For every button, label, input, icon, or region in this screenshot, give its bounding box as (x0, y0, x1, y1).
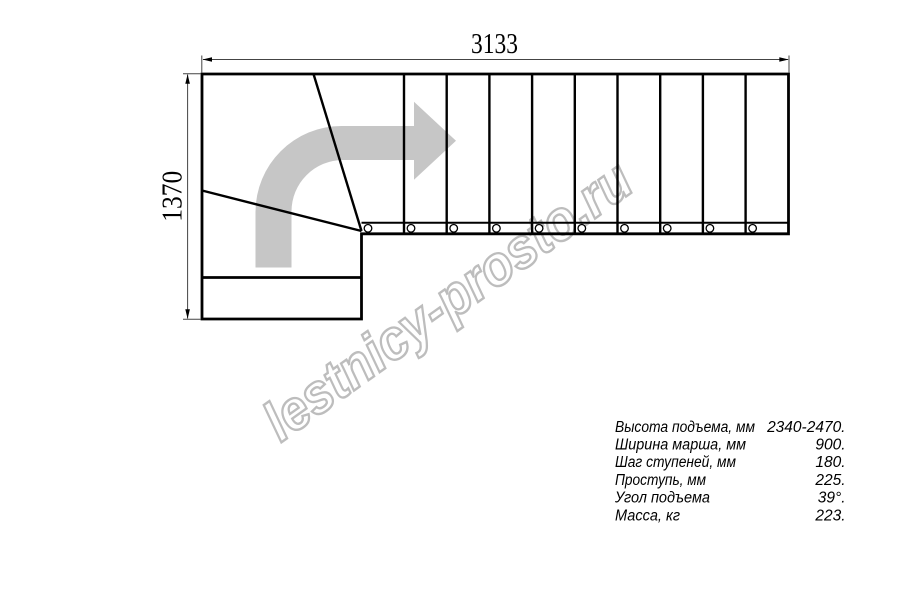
svg-text:223.: 223. (814, 507, 845, 524)
svg-text:Шаг ступеней, мм: Шаг ступеней, мм (615, 454, 736, 471)
svg-text:3133: 3133 (471, 29, 518, 60)
svg-text:Высота подъема, мм: Высота подъема, мм (615, 419, 755, 436)
svg-text:Масса, кг: Масса, кг (615, 507, 680, 524)
svg-text:Проступь, мм: Проступь, мм (615, 472, 706, 489)
svg-text:180.: 180. (815, 454, 845, 471)
svg-text:2340-2470.: 2340-2470. (766, 419, 845, 436)
svg-text:225.: 225. (814, 472, 845, 489)
svg-text:Угол подъема: Угол подъема (614, 489, 710, 506)
svg-text:Ширина марша, мм: Ширина марша, мм (615, 437, 746, 454)
svg-text:39°.: 39°. (818, 489, 846, 506)
svg-text:1370: 1370 (158, 171, 189, 222)
svg-text:900.: 900. (815, 437, 845, 454)
